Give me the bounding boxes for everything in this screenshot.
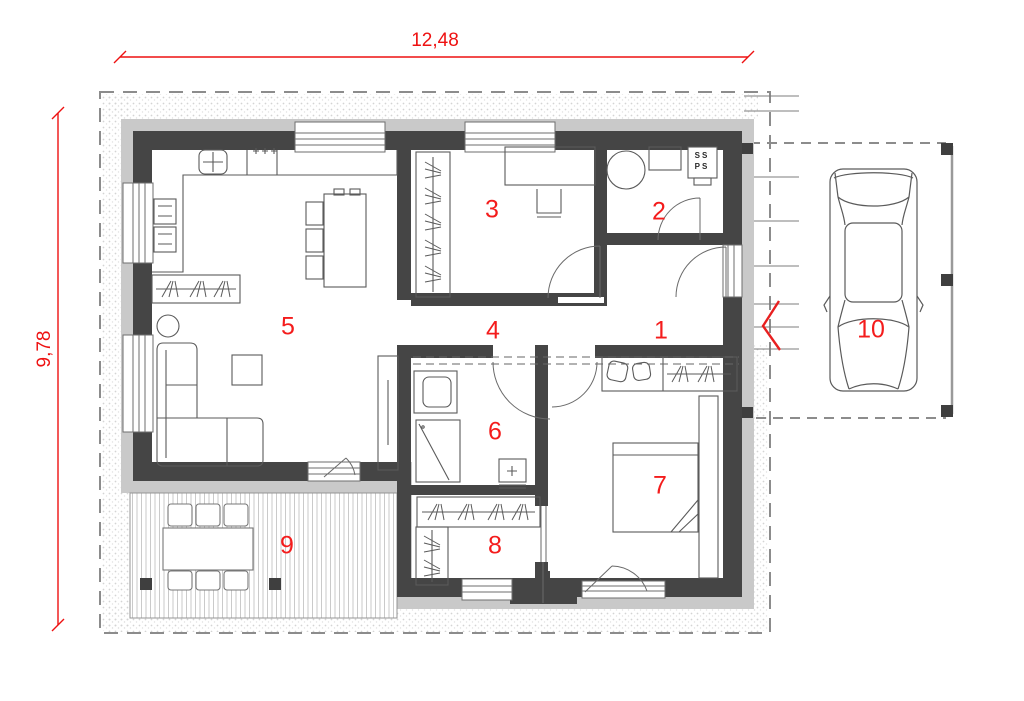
shaft-label-line1: SS	[695, 151, 710, 160]
room-label-3: 3	[485, 196, 499, 225]
room-label-10: 10	[857, 316, 885, 345]
window	[123, 183, 153, 263]
room-label-5: 5	[281, 313, 295, 342]
terrace-post	[269, 578, 281, 590]
shaft-label-line2: PS	[695, 162, 710, 171]
entrance-arrow-icon	[763, 301, 780, 350]
terrace-door-opening	[308, 462, 360, 481]
room-label-6: 6	[488, 418, 502, 447]
terrace-dining-set-icon	[163, 504, 253, 590]
dimension-width-label: 12,48	[411, 30, 459, 52]
room-label-9: 9	[280, 532, 294, 561]
window	[123, 335, 153, 432]
room-label-8: 8	[488, 532, 502, 561]
car-icon	[824, 169, 923, 391]
window	[462, 579, 512, 600]
room-label-2: 2	[652, 198, 666, 227]
terrace-post	[140, 578, 152, 590]
dimension-line-top	[114, 51, 754, 63]
dimension-line-left	[52, 107, 64, 631]
shaft-label: SSPS	[695, 151, 710, 173]
dimension-height-label: 9,78	[34, 331, 56, 368]
room-label-1: 1	[654, 317, 668, 346]
room-label-4: 4	[486, 317, 500, 346]
terrace-deck	[130, 493, 397, 618]
floor-plan-page: 12,48 9,78 1 2 3 4 5 6 7 8 9 10 SSPS	[0, 0, 1024, 701]
window	[295, 122, 385, 152]
room-label-7: 7	[653, 472, 667, 501]
floor-plan-canvas	[0, 0, 1024, 701]
